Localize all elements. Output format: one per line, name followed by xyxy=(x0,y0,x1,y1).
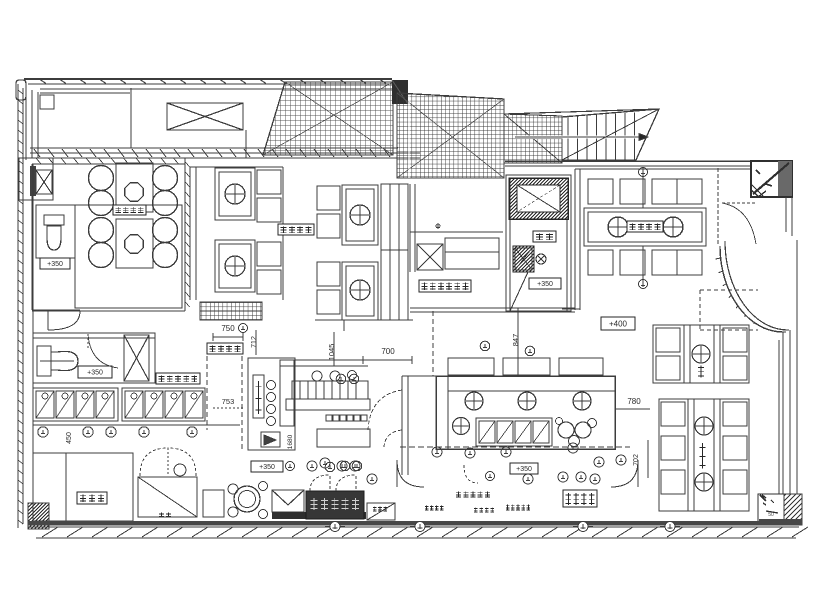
svg-text:+350: +350 xyxy=(537,281,553,288)
svg-text:+350: +350 xyxy=(47,261,63,268)
svg-text:847: 847 xyxy=(511,334,520,347)
svg-text:1045: 1045 xyxy=(327,344,336,361)
svg-text:712: 712 xyxy=(251,336,258,348)
svg-text:+350: +350 xyxy=(516,466,532,473)
svg-text:+350: +350 xyxy=(87,370,103,377)
svg-text:753: 753 xyxy=(222,397,235,406)
svg-text:50: 50 xyxy=(768,512,774,518)
svg-text:+400: +400 xyxy=(609,319,628,328)
svg-text:450: 450 xyxy=(66,432,73,444)
svg-text:700: 700 xyxy=(381,347,395,356)
svg-text:702: 702 xyxy=(633,454,640,466)
svg-text:750: 750 xyxy=(221,324,235,333)
svg-text:+350: +350 xyxy=(259,464,275,471)
svg-text:1680: 1680 xyxy=(287,434,294,449)
svg-text:780: 780 xyxy=(627,397,641,406)
